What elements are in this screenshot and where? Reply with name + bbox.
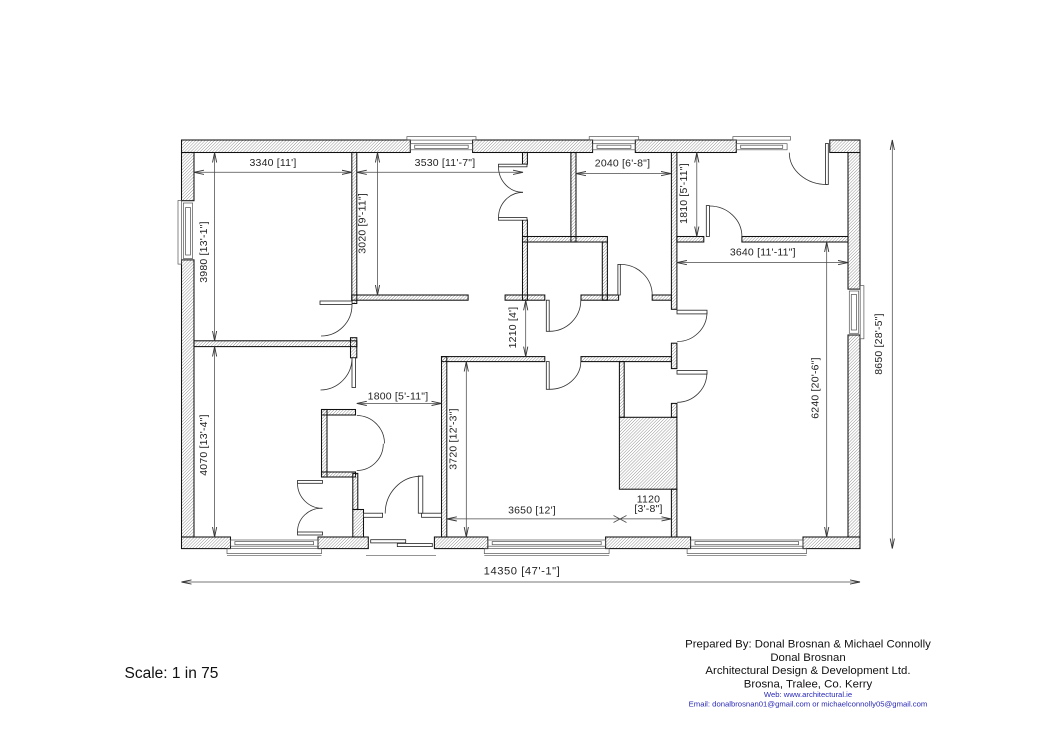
svg-text:Brosna, Tralee, Co. Kerry: Brosna, Tralee, Co. Kerry xyxy=(744,678,873,690)
svg-text:3020 [9'-11"]: 3020 [9'-11"] xyxy=(357,193,369,254)
svg-text:3340 [11']: 3340 [11'] xyxy=(249,157,296,169)
svg-text:Architectural Design & Develop: Architectural Design & Development Ltd. xyxy=(705,665,910,677)
svg-text:1210 [4']: 1210 [4'] xyxy=(507,307,519,349)
svg-text:1810 [5'-11"]: 1810 [5'-11"] xyxy=(678,163,690,224)
svg-text:3640 [11'-11"]: 3640 [11'-11"] xyxy=(730,247,796,259)
svg-text:14350 [47'-1"]: 14350 [47'-1"] xyxy=(484,566,561,578)
svg-text:Scale: 1 in 75: Scale: 1 in 75 xyxy=(125,665,219,682)
svg-text:3650 [12']: 3650 [12'] xyxy=(508,504,556,516)
svg-text:Web: www.architectural.ie: Web: www.architectural.ie xyxy=(764,690,852,699)
svg-text:3980 [13'-1"]: 3980 [13'-1"] xyxy=(198,221,210,282)
svg-text:6240 [20'-6"]: 6240 [20'-6"] xyxy=(810,357,822,418)
svg-text:1800 [5'-11"]: 1800 [5'-11"] xyxy=(368,390,429,402)
svg-text:Prepared By: Donal Brosnan & M: Prepared By: Donal Brosnan & Michael Con… xyxy=(685,639,931,651)
svg-text:[3'-8"]: [3'-8"] xyxy=(634,503,662,515)
svg-text:3530 [11'-7"]: 3530 [11'-7"] xyxy=(415,157,476,169)
svg-text:8650 [28'-5"]: 8650 [28'-5"] xyxy=(873,313,885,374)
svg-text:Email: donalbrosnan01@gmail.co: Email: donalbrosnan01@gmail.com or micha… xyxy=(689,700,928,709)
svg-text:3720 [12'-3"]: 3720 [12'-3"] xyxy=(448,408,460,469)
svg-text:2040 [6'-8"]: 2040 [6'-8"] xyxy=(595,158,650,170)
svg-text:Donal Brosnan: Donal Brosnan xyxy=(770,652,845,664)
svg-text:4070 [13'-4"]: 4070 [13'-4"] xyxy=(198,414,210,475)
